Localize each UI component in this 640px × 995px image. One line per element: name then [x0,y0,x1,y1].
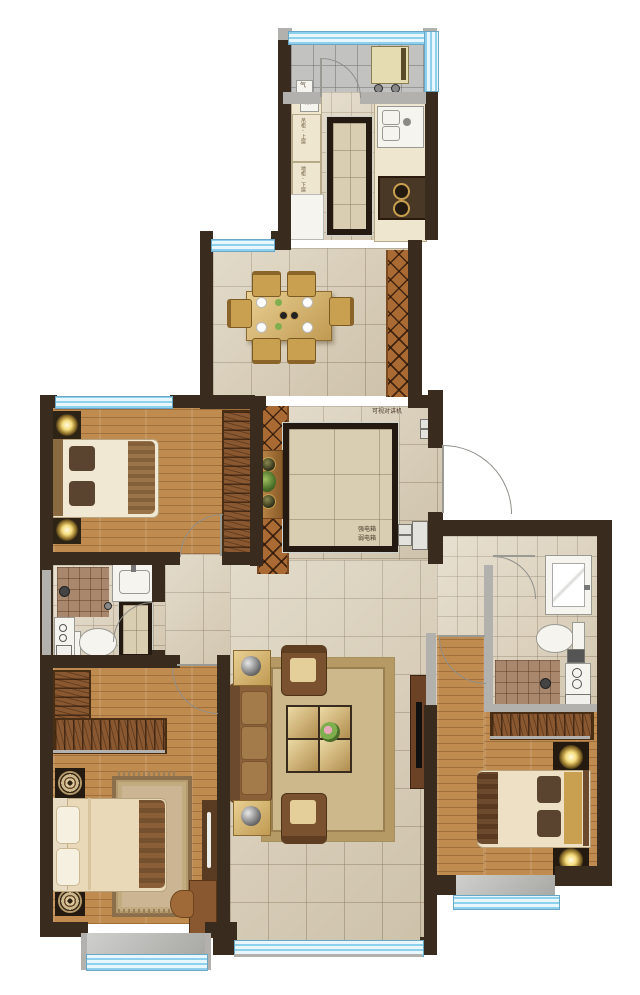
bed-sw-pillow-2 [56,848,80,886]
plate-3 [256,322,267,333]
lamp-sw-1 [58,771,82,795]
wall-living-ne-pillar [426,633,436,705]
rug-sw-fringe-top [118,771,178,776]
coffee-table [286,705,352,773]
weak-electric-label: 弱电箱 [358,536,376,543]
wall-bedroom-e-west [424,705,437,938]
bed-nw-pillow-1 [69,446,95,471]
wall-balcony-divider-right [360,92,426,104]
door-arc-entry [443,445,512,514]
sofa-back [229,683,240,801]
bay-sill-e [456,875,555,896]
coffee-table-panel [320,740,350,771]
cabinet-cell-1 [292,114,321,162]
sofa-cushion-3 [241,761,268,795]
washer-east-knob-1 [572,668,582,678]
armchair-bottom-cushion [290,800,316,824]
toilet-west-bowl [79,628,117,657]
lamp-sw-2 [58,889,82,913]
vanity-west-basin [119,570,150,594]
wall-nw-right [250,406,263,566]
wall-dining-left [200,231,213,407]
vanity-east-faucet [584,585,590,590]
floor-drain-west-1 [104,602,112,610]
dish-green-2 [275,323,282,330]
dining-chair-right [329,297,354,326]
window-balcony-right [424,31,439,92]
burner-1 [393,183,410,200]
bed-e-pillow-2 [537,810,561,837]
kitchen-floor-inlay [327,117,372,235]
fridge [289,194,324,240]
wall-kitchen-right [425,88,438,240]
chair-sw [170,890,194,918]
lamp-nw-2 [56,519,78,541]
dining-chair-top-2 [287,271,316,297]
plate-4 [302,322,313,333]
armchair-top-cushion [290,658,316,682]
console-bowl-1 [261,457,276,472]
plate-1 [256,297,267,308]
window-balcony-top [288,31,428,45]
coffee-table-panel [288,707,318,738]
wall-bedroom-e-bottom-left [424,875,458,895]
washer-west-knob-1 [59,624,67,632]
vanity-east-basin [552,563,585,607]
washer-west-knob-2 [59,634,67,642]
washer-east-knob-2 [572,679,582,689]
exhaust-box-east [567,649,585,663]
wall-bath-east-bottom [484,704,597,712]
console-bowl-2 [261,494,276,509]
bed-sw-foot-runner [139,800,165,888]
window-bay-sw [86,954,208,971]
bed-nw-foot-runner [128,441,155,514]
wall-kitchen-left [278,40,291,240]
electric-box-2 [398,535,412,546]
lamp-e-1 [559,745,583,769]
dish-green-1 [275,299,282,306]
dining-chair-bottom-1 [252,338,281,364]
bowl-1 [279,311,288,320]
bed-nw-headboard [53,439,63,516]
window-bedroom-nw [55,396,173,409]
globe-decor-1 [241,656,261,676]
window-dining-west [211,239,275,252]
dresser-sw-mirror [207,812,211,868]
foyer-floor-medallion [283,423,398,552]
tv-screen [416,702,422,768]
bed-sw-pillow-1 [56,806,80,844]
bay-sill-sw [86,933,206,955]
sill-living-south [234,954,422,957]
cabinet-label-lower: 地柜-下层 [300,166,306,192]
sink-basin-2 [382,126,400,141]
wall-bath-west-bottom [40,655,180,668]
rug-sw-fringe-bottom [118,909,178,914]
wardrobe-e-edge [490,736,590,739]
dining-chair-bottom-2 [287,338,316,364]
globe-decor-2 [241,806,261,826]
bowl-2 [290,311,299,320]
shower-head-west [59,586,70,597]
wall-nw-top-right [170,395,255,408]
coffee-table-panel [288,740,318,771]
wall-east-outer [597,536,612,884]
door-leaf-bedroom-e [439,635,485,637]
wall-dining-right [408,240,422,406]
door-leaf-bedroom-nw [220,514,222,556]
gas-meter-label: 气 [300,83,306,90]
floor-plan: 气 热 吊柜-上层 地柜-下层 可视对讲机 强电箱 弱电箱 [0,0,640,995]
intercom-label: 可视对讲机 [372,409,402,416]
electric-box-1 [398,524,412,535]
window-bay-e [453,895,560,910]
wall-bedroom-e-bottom-right [555,866,612,886]
bed-e-foot-runner [477,772,498,844]
washer-control-panel [401,48,406,80]
shower-head-east [540,678,551,689]
wall-north-east-section [443,520,612,536]
door-leaf-balcony [320,58,322,97]
burner-2 [393,200,410,217]
sink-faucet [403,118,411,126]
cabinet-label-upper: 吊柜-上层 [300,118,306,144]
sofa-cushion-1 [241,691,268,725]
door-leaf-entry [442,445,444,513]
flower-vase [320,722,340,742]
dining-chair-top-1 [252,271,281,297]
wall-entry-bottom [428,512,443,564]
sofa-cushion-2 [241,726,268,760]
wall-west-gray-accent [42,570,51,658]
wall-bath-west-right-a [152,565,165,602]
bed-e-throw [564,772,582,844]
dining-chair-left [227,299,252,328]
lamp-nw-1 [56,414,78,436]
wardrobe-sw-horizontal [53,718,167,754]
wall-balcony-divider-left [283,92,321,104]
wardrobe-sw-edge [53,750,165,753]
wall-nw-bottom-2 [222,552,263,565]
bed-nw-pillow-2 [69,481,95,506]
strong-electric-label: 强电箱 [358,527,376,534]
vanity-west-faucet [131,564,136,572]
bed-sw-duvet-fold [88,798,91,890]
electric-meter-cabinet [412,521,428,550]
wall-sw-right [217,655,230,937]
plate-2 [302,297,313,308]
bed-e-headboard [583,770,589,846]
wall-nw-bottom [40,552,180,565]
wall-entry-top [428,390,443,448]
bed-e-pillow-1 [537,776,561,803]
door-leaf-bathroom-east [493,555,535,557]
sink-basin-1 [382,110,400,125]
door-leaf-bedroom-sw [177,664,217,666]
